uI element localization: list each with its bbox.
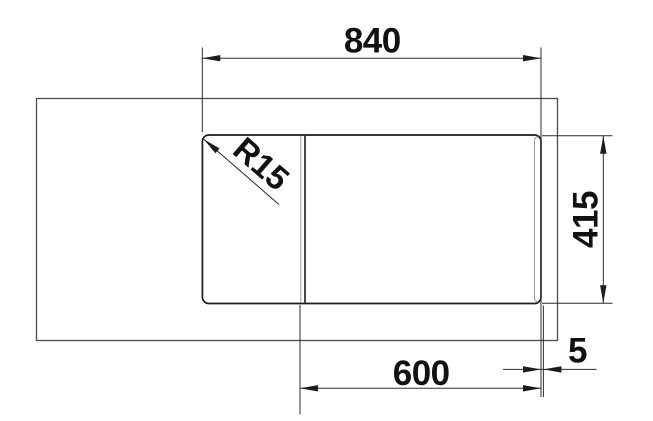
dim-840-label: 840 xyxy=(344,22,401,61)
dim-415-label: 415 xyxy=(567,191,606,248)
sink-dimension-drawing: 840 415 600 5 R15 xyxy=(0,0,653,421)
dimension-drawing-canvas: 840 415 600 5 R15 xyxy=(0,0,653,421)
dim-5-label: 5 xyxy=(568,331,587,370)
dim-600-label: 600 xyxy=(393,354,450,393)
